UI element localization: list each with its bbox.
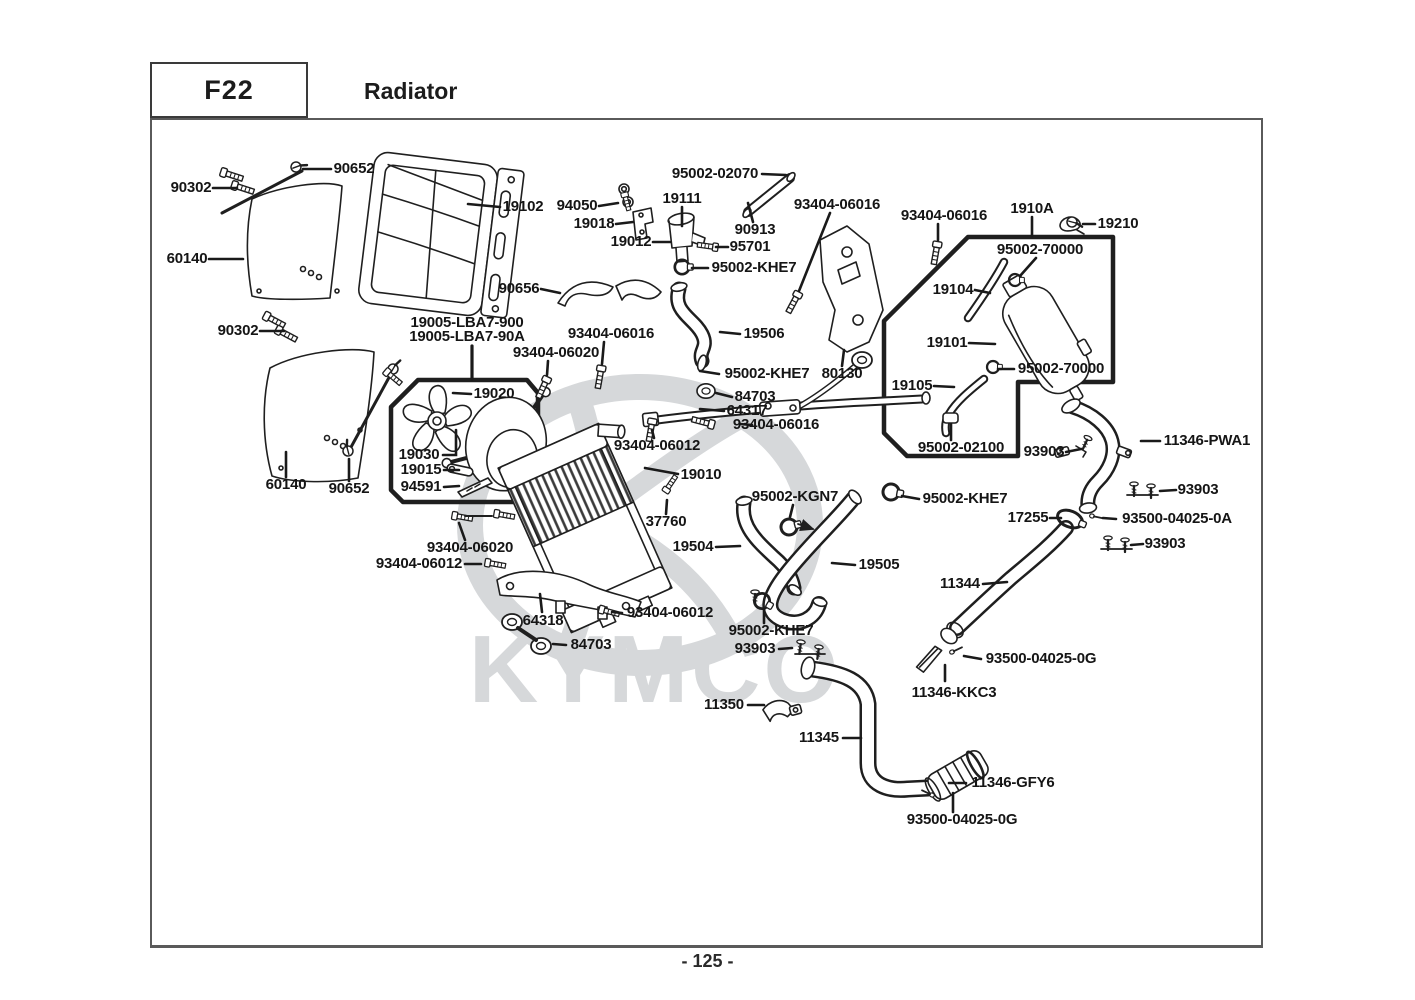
mount-bracket-art bbox=[820, 226, 883, 352]
hose-protector-art bbox=[558, 280, 661, 306]
upper-hose-art bbox=[670, 281, 708, 371]
right-pipes-art bbox=[938, 396, 1158, 647]
reserve-tank-art bbox=[995, 274, 1097, 401]
grille-art bbox=[357, 151, 524, 320]
reserve-tank-box-art bbox=[884, 217, 1113, 456]
shroud-panel-upper-art bbox=[248, 184, 343, 300]
shroud-panel-lower-art bbox=[264, 350, 374, 482]
filler-neck-art bbox=[619, 184, 719, 274]
page-number: - 125 - bbox=[0, 951, 1415, 972]
catalog-page: F22 Radiator bbox=[0, 0, 1415, 1000]
wedge-clamp-kkc3-art bbox=[912, 645, 946, 674]
diagram-artwork: KYMCO bbox=[0, 0, 1415, 1000]
